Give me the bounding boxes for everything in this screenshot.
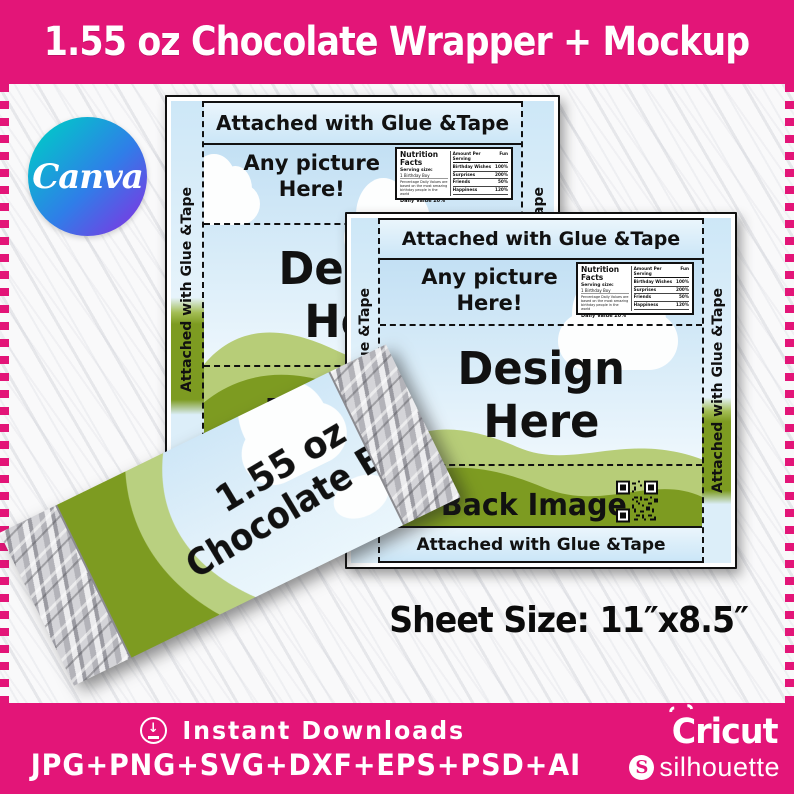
stage: Canva Attached with Glue &Tape Attached … [0,84,794,703]
nutrition-facts-label: Nutrition Facts Serving size: 1 Birthday… [576,262,694,315]
title-banner: 1.55 oz Chocolate Wrapper + Mockup [0,0,794,84]
cricut-logo: Cricut [671,715,777,750]
glue-strip-top: Attached with Glue &Tape [380,220,702,260]
back-image-text: Back Image [441,488,627,523]
any-picture-text: Any picture Here! [239,150,385,203]
any-picture-text: Any picture Here! [415,264,563,317]
instant-downloads-row: ↓ Instant Downloads [140,716,472,745]
front-panel: Any picture Here! Nutrition Facts Servin… [380,260,702,326]
glue-strip-bottom: Attached with Glue &Tape [380,526,702,561]
qr-code-icon [616,481,658,523]
footer-banner: ↓ Instant Downloads JPG+PNG+SVG+DXF+EPS+… [0,703,794,794]
product-listing-image: 1.55 oz Chocolate Wrapper + Mockup Canva… [0,0,794,794]
file-formats-text: JPG+PNG+SVG+DXF+EPS+PSD+AI [31,748,581,782]
download-icon: ↓ [140,717,167,744]
glue-flap-left: Attached with Glue &Tape [171,101,204,479]
glue-strip-top: Attached with Glue &Tape [204,103,521,145]
canva-logo: Canva [28,117,147,236]
canva-logo-text: Canva [32,157,143,197]
nutrition-facts-label: Nutrition Facts Serving size: 1 Birthday… [395,147,513,200]
dashed-border-left [0,84,9,703]
page-title: 1.55 oz Chocolate Wrapper + Mockup [44,19,750,65]
instant-downloads-text: Instant Downloads [182,716,465,745]
flap-label: Attached with Glue &Tape [179,187,195,392]
dashed-border-right [785,84,794,703]
sheet-size-text: Sheet Size: 11″x8.5″ [389,600,748,641]
silhouette-s-icon: S [629,755,654,780]
glue-flap-right: Attached with Glue &Tape [702,218,731,563]
silhouette-logo: S silhouette [629,752,780,783]
flap-label: Attached with Glue &Tape [710,288,726,493]
